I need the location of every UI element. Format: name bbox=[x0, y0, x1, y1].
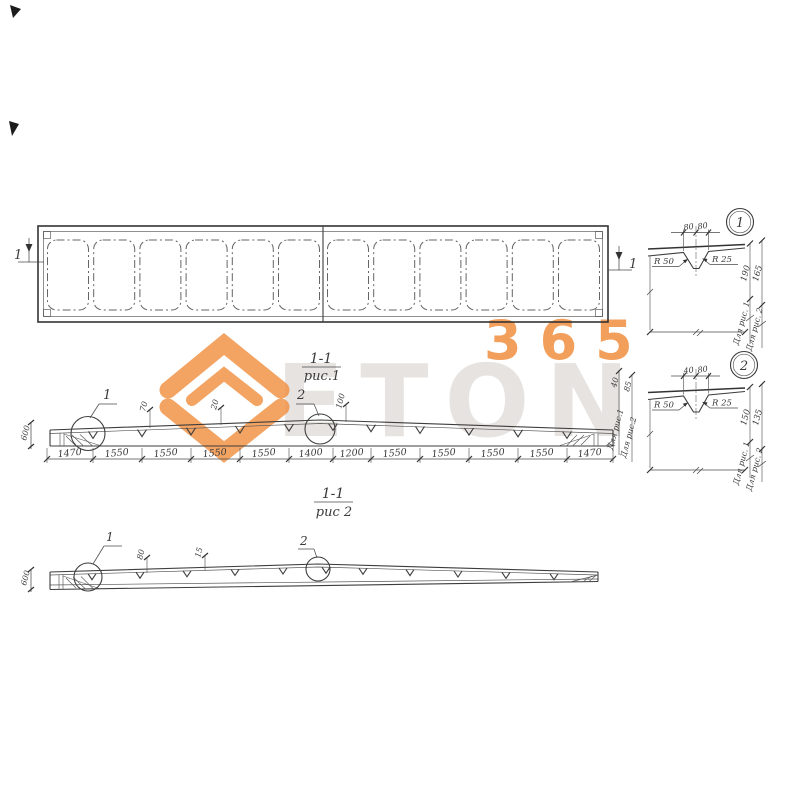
radius-right-label: R 25 bbox=[711, 255, 732, 265]
groove-dim-a: 80 bbox=[683, 222, 694, 232]
detail-callout-2-fig2 bbox=[306, 557, 330, 581]
callout-label-1: 1 bbox=[103, 388, 111, 403]
groove-dim-b: 80 bbox=[697, 221, 708, 231]
svg-text:1-1: 1-1 bbox=[310, 351, 333, 367]
fig1-dimension-values: 1470 1550 1550 1550 1550 1400 1200 1550 … bbox=[57, 447, 602, 460]
svg-text:1470: 1470 bbox=[577, 447, 602, 460]
svg-text:1200: 1200 bbox=[339, 447, 364, 460]
svg-text:1550: 1550 bbox=[104, 447, 129, 460]
fig2-left-height: 600 bbox=[19, 569, 32, 586]
callout-label-1: 1 bbox=[106, 530, 114, 544]
svg-text:1-1: 1-1 bbox=[322, 486, 345, 502]
radius-left-label: R 50 bbox=[653, 401, 675, 411]
svg-text:1470: 1470 bbox=[57, 447, 82, 460]
callout-label-2: 2 bbox=[299, 534, 308, 548]
small-dim-c: 100 bbox=[334, 392, 347, 409]
plan-view: 1 1 bbox=[14, 226, 637, 322]
radius-left-label: R 50 bbox=[653, 257, 675, 267]
drawing-page: ETON 365 bbox=[0, 0, 800, 800]
detail-height-2: 135 bbox=[751, 408, 765, 426]
svg-text:1550: 1550 bbox=[480, 447, 505, 460]
detail-badge-number: 2 bbox=[739, 359, 748, 374]
svg-text:1400: 1400 bbox=[298, 447, 323, 460]
svg-text:1550: 1550 bbox=[153, 447, 178, 460]
section-mark-right: 1 bbox=[608, 246, 637, 272]
caption-fig1: 1-1 рис.1 bbox=[302, 351, 341, 384]
svg-text:рис.1: рис.1 bbox=[304, 369, 340, 384]
svg-text:1550: 1550 bbox=[251, 447, 276, 460]
radius-right-label: R 25 bbox=[711, 399, 732, 409]
detail-callout-1-fig2 bbox=[74, 563, 102, 591]
callout-label-2: 2 bbox=[296, 388, 305, 403]
svg-text:1550: 1550 bbox=[431, 447, 456, 460]
detail-badge-number: 1 bbox=[736, 216, 744, 231]
detail-callout-2-fig1 bbox=[305, 414, 335, 444]
svg-text:1: 1 bbox=[14, 248, 22, 263]
svg-text:рис 2: рис 2 bbox=[316, 505, 352, 520]
detail-view-2: 2 40 80 R 50 R 25 bbox=[647, 352, 766, 493]
fig1-left-height: 600 bbox=[19, 424, 32, 441]
svg-text:1: 1 bbox=[629, 257, 637, 272]
detail-height-2: 165 bbox=[751, 264, 765, 282]
svg-text:1550: 1550 bbox=[529, 447, 554, 460]
detail-view-1: 1 80 80 R 50 R 25 bbox=[647, 209, 766, 353]
section-mark-left: 1 bbox=[14, 238, 44, 263]
groove-dim-b: 80 bbox=[697, 364, 708, 374]
section-view-fig2: 1 2 80 15 600 bbox=[19, 530, 598, 592]
svg-text:1550: 1550 bbox=[382, 447, 407, 460]
groove-dim-a: 40 bbox=[682, 365, 694, 375]
scan-artifact-marks bbox=[9, 5, 21, 136]
detail-callout-1-fig1 bbox=[71, 417, 105, 451]
svg-text:1550: 1550 bbox=[202, 447, 227, 460]
caption-fig2: 1-1 рис 2 bbox=[314, 486, 353, 520]
